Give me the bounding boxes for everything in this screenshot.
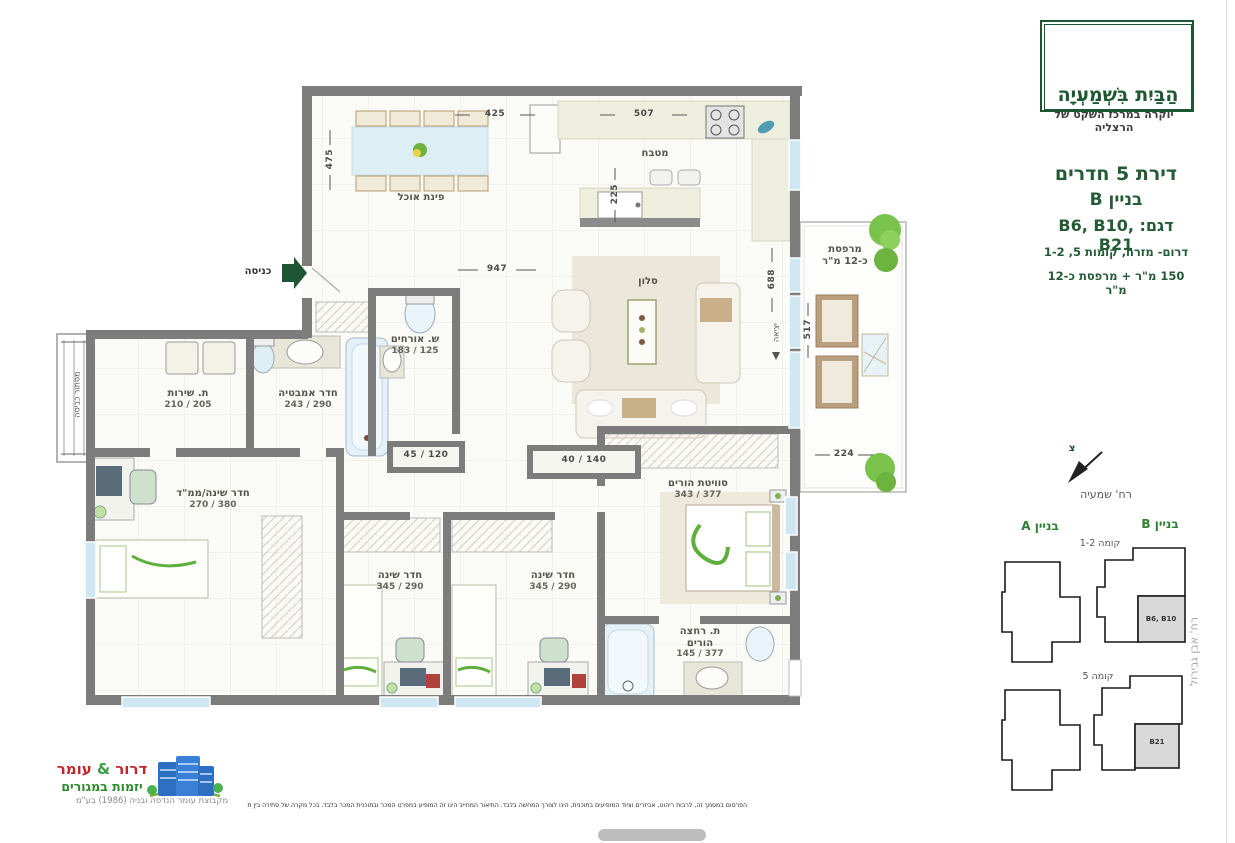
compass-icon: [1068, 452, 1102, 483]
room-label-bedroom2: חדר שינה 290 / 345: [529, 570, 576, 592]
brand-logo-box: הַבַּיִת בִּשְׁמַעְיָה: [1040, 20, 1194, 112]
ampersand-icon: &: [97, 760, 110, 778]
side-street-label: רח' אבן גבירול: [1188, 617, 1201, 686]
toilet: [252, 343, 274, 373]
scrollbar-thumb[interactable]: [598, 829, 706, 841]
unit-orientation: דרום- מזרח, קומות 5, 1-2: [1041, 245, 1191, 259]
side-table: [862, 334, 888, 376]
brand-tagline: יוקרה במרכז השקט של הרצליה: [1040, 108, 1188, 134]
room-label-mamad: חדר שינה/ממ"ד 380 / 270: [176, 488, 249, 510]
sofa-pillow: [700, 298, 732, 322]
developer-group-line: מקבוצת עומר הנדסה ובניה (1986) בע"מ: [52, 796, 252, 806]
brand-logo-inner-frame: הַבַּיִת בִּשְׁמַעְיָה: [1044, 24, 1192, 110]
dim-688: 688: [767, 269, 777, 289]
dining-table: [352, 111, 488, 191]
wardrobe: [340, 518, 440, 552]
room-label-dining: פינת אוכל: [398, 192, 445, 204]
entrance-label: כניסה: [245, 266, 272, 278]
keyplan-unit-b6-b10: B6, B10: [1146, 615, 1176, 623]
room-label-suite: סוויטת הורים 377 / 343: [668, 478, 728, 500]
dim-425: 425: [485, 109, 505, 119]
developer-logo-buildings: [147, 756, 223, 796]
developer-name: דרור & עומר: [52, 760, 152, 778]
keyplan-floor1-2: [1002, 548, 1185, 662]
keyplan-unit-b21: B21: [1149, 738, 1164, 746]
unit-area: 150 מ"ר + מרפסת כ-12 מ"ר: [1041, 269, 1191, 297]
wardrobe: [262, 516, 302, 638]
room-label-kitchen: מטבח: [642, 148, 669, 160]
room-label-bedroom1: חדר שינה 290 / 345: [376, 570, 423, 592]
keyplan-building-b-label: בניין B: [1141, 517, 1178, 531]
compass-north-label: צ: [1069, 443, 1076, 454]
room-label-bathroom: חדר אמבטיה 290 / 243: [278, 388, 337, 410]
toilet: [746, 627, 774, 661]
armchair: [552, 290, 590, 332]
keyplan-floors-1-2-label: קומה 1-2: [1080, 538, 1121, 549]
entry-closet: [316, 302, 372, 332]
wardrobe: [452, 518, 552, 552]
room-label-utility: ת. שירות 205 / 210: [164, 388, 211, 410]
dim-507: 507: [634, 109, 654, 119]
closet-large-dims: 140 / 40: [562, 455, 607, 465]
closet-small-dims: 120 / 45: [404, 450, 449, 460]
brochure-page: פינת אוכל מטבח סלון ש. אורחים 125 / 183 …: [0, 0, 1235, 843]
page-edge-divider: [1226, 0, 1227, 843]
room-label-balcony: מרפסת כ-12 מ"ר: [822, 244, 868, 267]
brand-title: הַבַּיִת בִּשְׁמַעְיָה: [1045, 84, 1191, 106]
dim-947: 947: [487, 264, 507, 274]
coffee-table: [628, 300, 656, 364]
keyplan-building-a-label: בניין A: [1021, 519, 1058, 533]
dim-517: 517: [803, 319, 813, 339]
laundry-label: מסתור כביסה: [72, 372, 81, 418]
dim-225: 225: [610, 184, 620, 204]
room-label-living: סלון: [638, 276, 658, 288]
dim-224: 224: [834, 449, 854, 459]
unit-type: דירת 5 חדרים: [1041, 163, 1191, 185]
keyplan-floor5: [1002, 676, 1182, 790]
legal-disclaimer: הפרסום במסמך זה, לרבות ריהוט, אביזרים וצ…: [247, 802, 747, 809]
stove: [706, 106, 744, 138]
armchair: [552, 340, 590, 382]
unit-building: בניין B: [1041, 190, 1191, 210]
room-label-parents-bath: ת. רחצה הורים 377 / 145: [676, 626, 723, 659]
developer-subtitle: יזמות במגורים: [52, 779, 152, 794]
exit-label: יציאה: [771, 323, 780, 342]
keyplan-floor-5-label: קומה 5: [1082, 671, 1113, 682]
room-label-guest-wc: ש. אורחים 125 / 183: [391, 334, 439, 356]
street-label: רח' שמעיה: [1080, 488, 1132, 501]
dim-475: 475: [325, 149, 335, 169]
